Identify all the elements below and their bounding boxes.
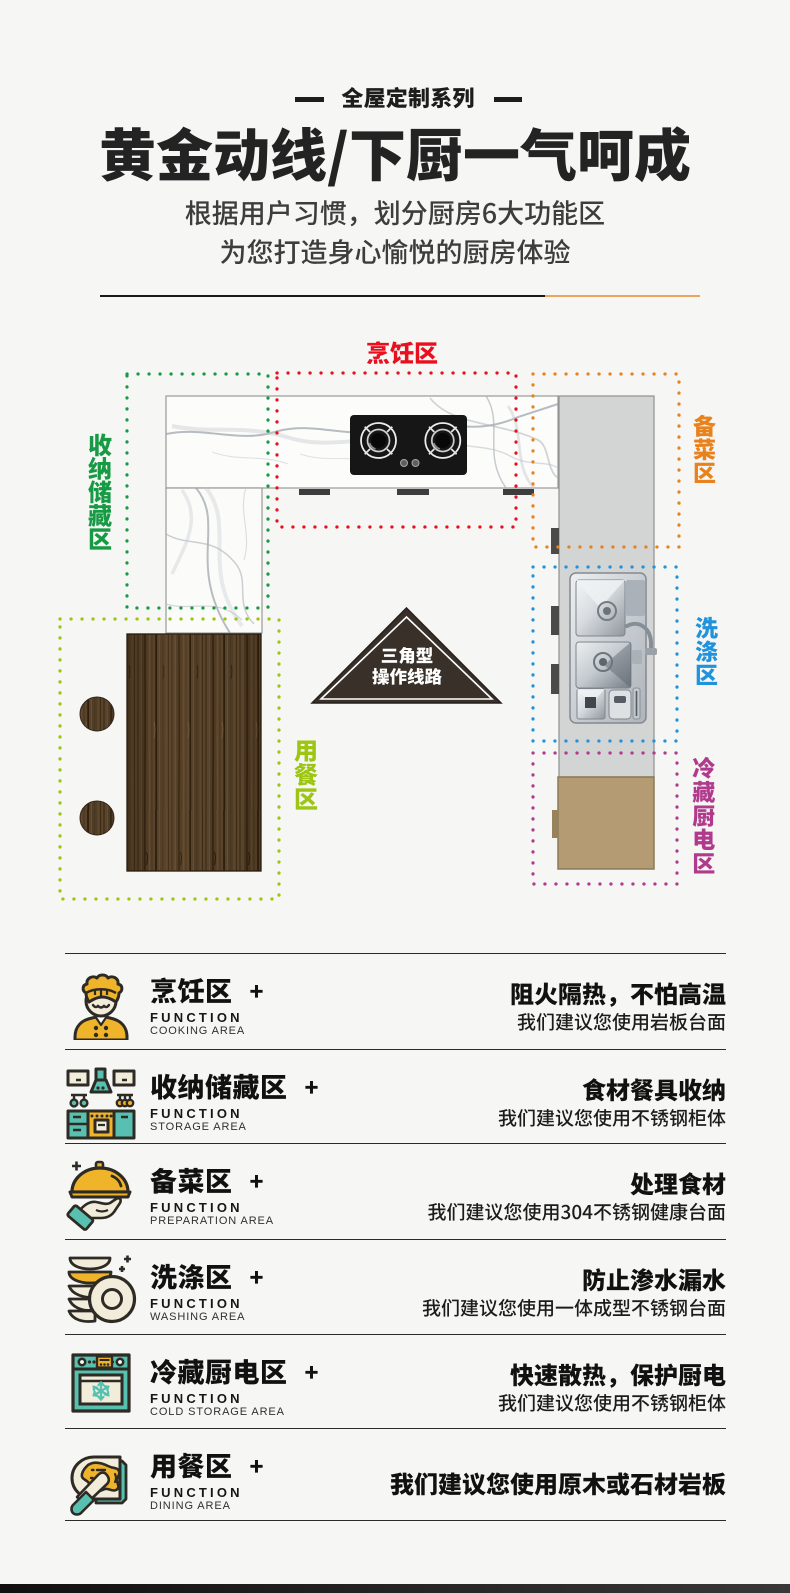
svg-text:操作线路: 操作线路 <box>372 664 442 689</box>
svg-text:用餐区: 用餐区 <box>294 732 318 815</box>
svg-text:收纳储藏区: 收纳储藏区 <box>88 426 112 555</box>
svg-text:备菜区: 备菜区 <box>693 408 716 489</box>
svg-text:烹饪区: 烹饪区 <box>366 334 438 369</box>
svg-text:冷藏厨电区: 冷藏厨电区 <box>692 750 715 880</box>
svg-text:洗涤区: 洗涤区 <box>695 610 718 691</box>
